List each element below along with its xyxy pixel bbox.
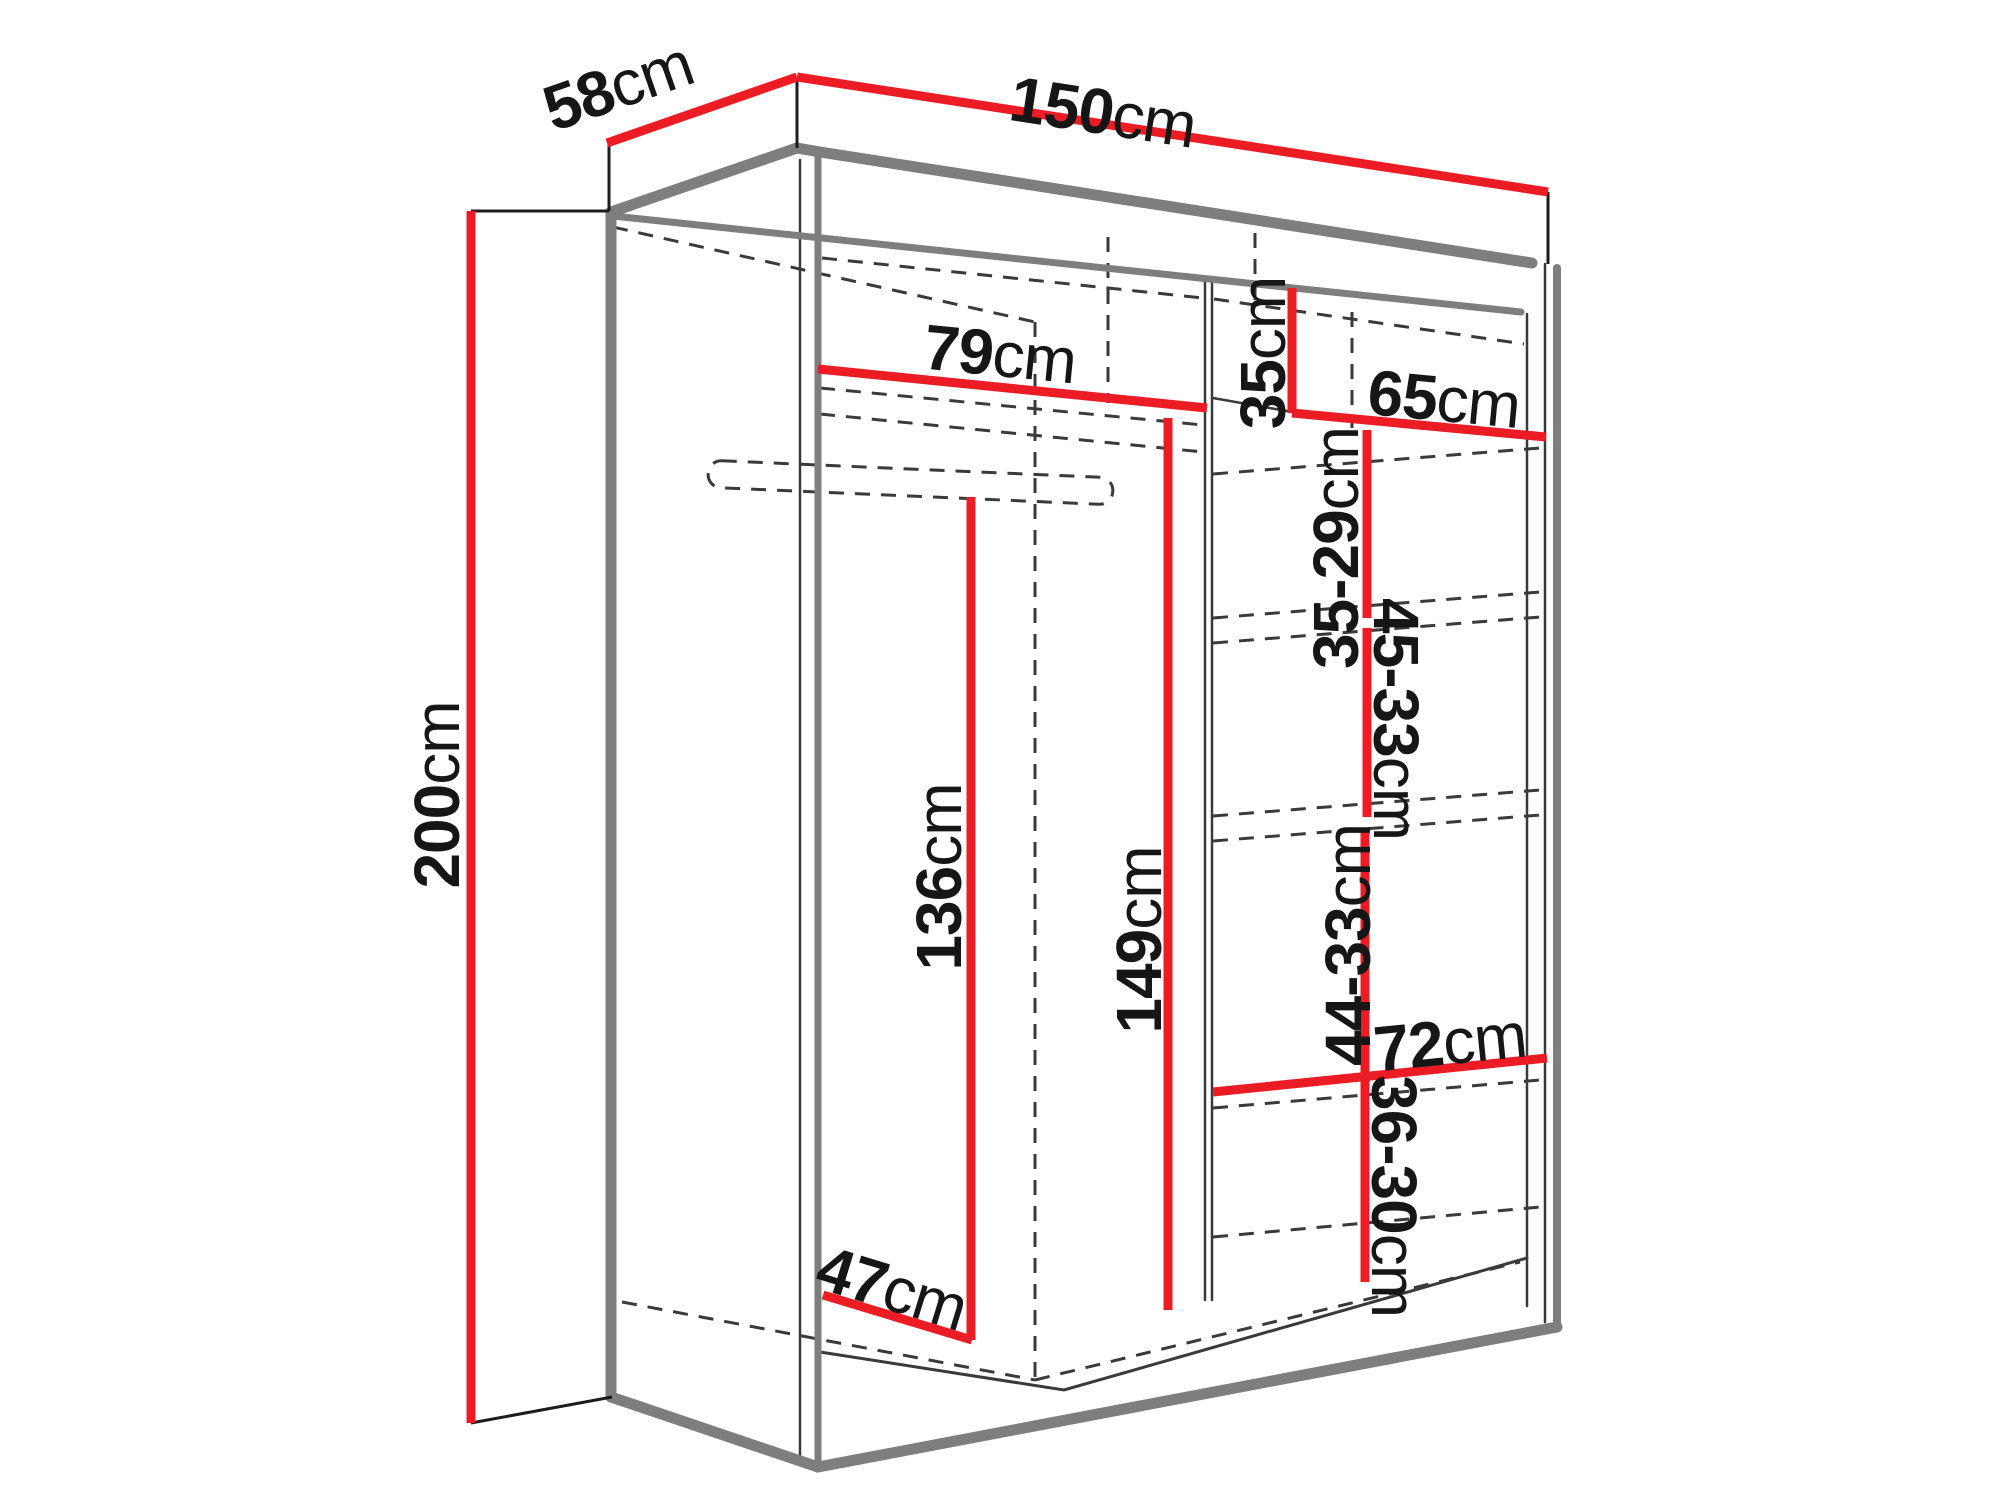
clothes-rail — [708, 460, 1114, 505]
label-hanging-space-height: 136cm — [903, 783, 975, 970]
label-right-gap-2: 45-33cm — [1360, 598, 1432, 840]
height-tick-bottom — [471, 1397, 612, 1423]
label-floor-depth: 47cm — [809, 1231, 976, 1344]
diagram-canvas: 150cm 58cm 200cm 79cm 35cm 65cm 35-29cm … — [0, 0, 2000, 1500]
label-height: 200cm — [401, 701, 473, 888]
label-right-top-shelf-height: 35cm — [1227, 277, 1299, 430]
dimension-labels: 150cm 58cm 200cm 79cm 35cm 65cm 35-29cm … — [401, 27, 1529, 1345]
opening-top-edge — [613, 216, 1521, 312]
label-width: 150cm — [1005, 62, 1201, 161]
bottom-front-edge — [818, 1327, 1557, 1467]
right-top-shelf-back-edge — [1213, 448, 1540, 474]
top-left-slope-edge — [611, 148, 797, 212]
bottom-left-slope-edge — [611, 1397, 818, 1467]
left-top-shelf-back-edge — [820, 414, 1203, 452]
label-depth: 58cm — [534, 27, 702, 145]
label-left-section-height: 149cm — [1103, 846, 1175, 1033]
label-right-gap-4: 36-30cm — [1358, 1075, 1430, 1317]
label-left-top-shelf-width: 79cm — [921, 311, 1080, 398]
label-right-section-width: 65cm — [1365, 356, 1524, 442]
interior-back-top-edge-left — [822, 258, 1203, 298]
label-right-bottom-shelf-width: 72cm — [1371, 999, 1530, 1086]
wardrobe-dimension-diagram: 150cm 58cm 200cm 79cm 35cm 65cm 35-29cm … — [0, 0, 2000, 1500]
